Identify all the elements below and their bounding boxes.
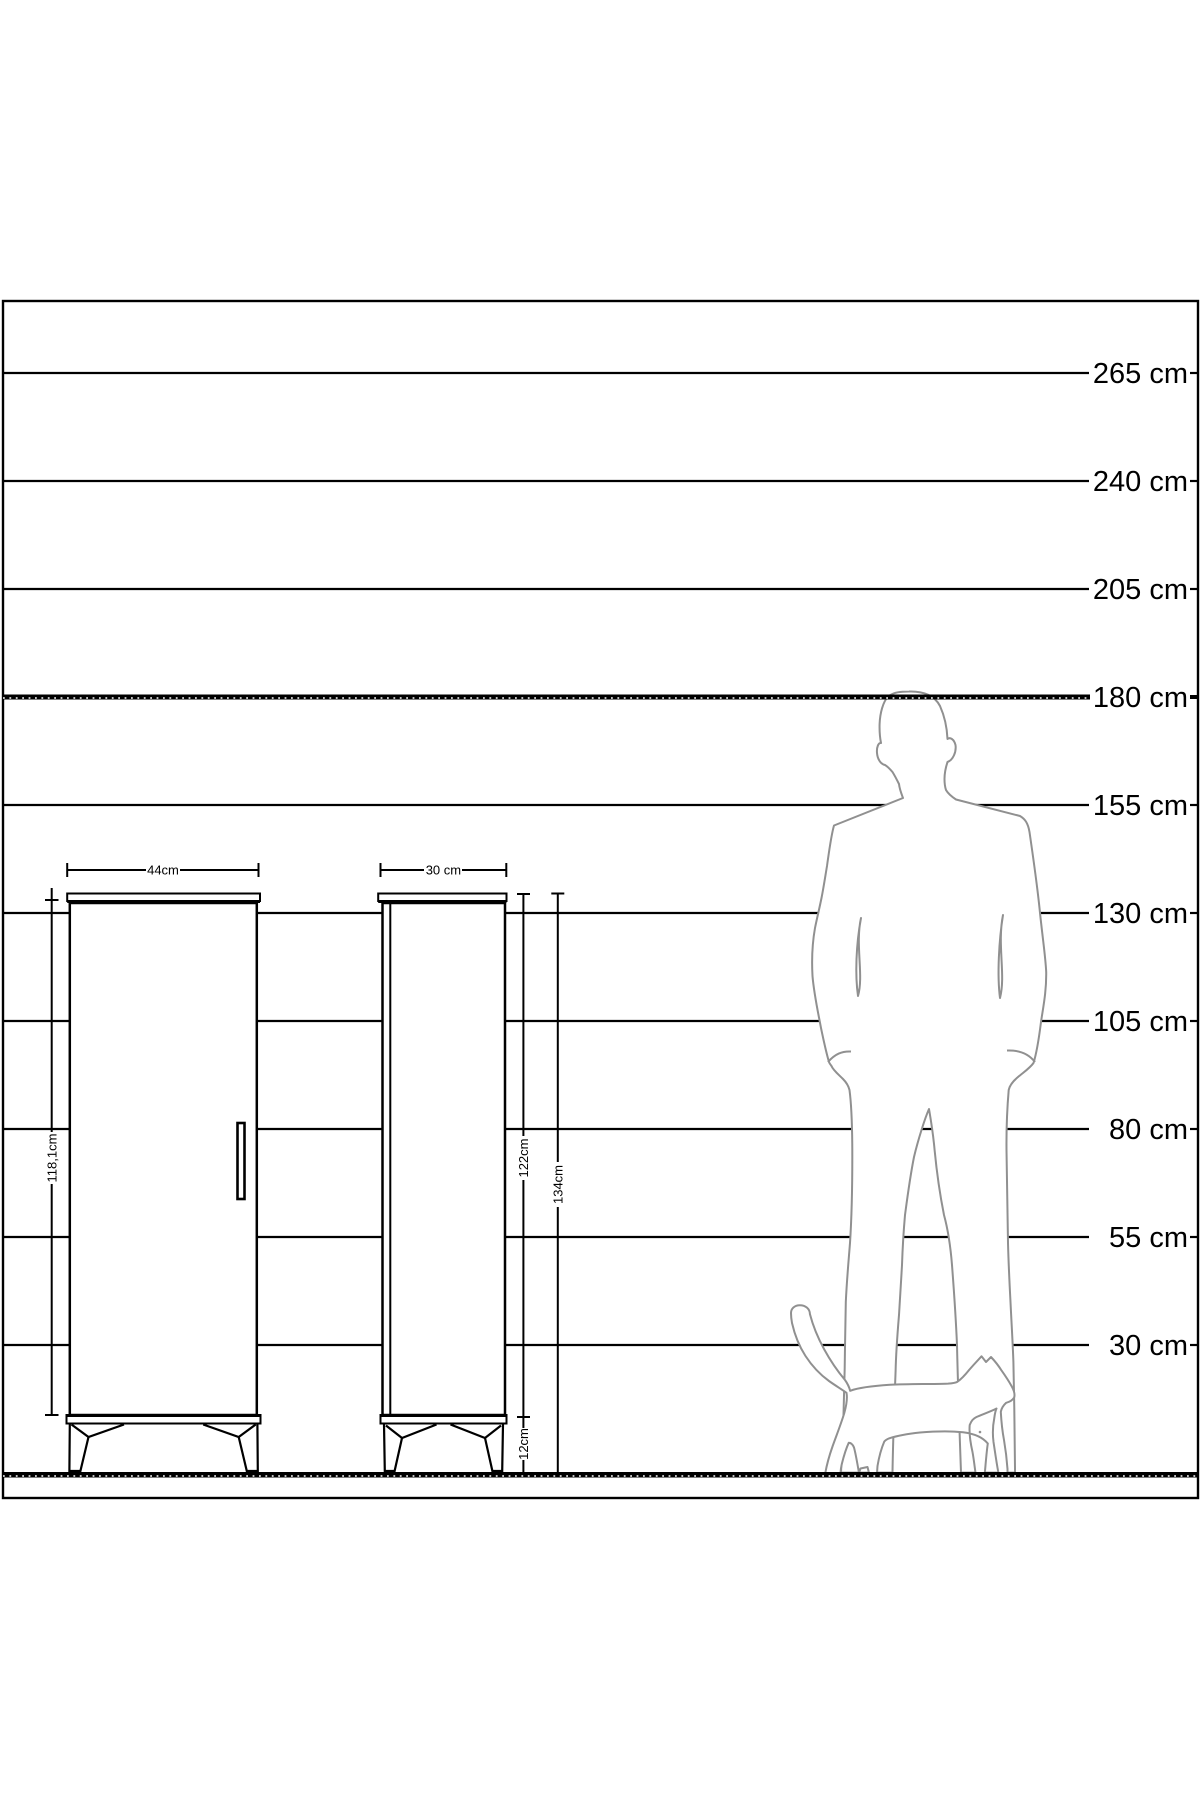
svg-text:265 cm: 265 cm: [1093, 358, 1188, 390]
svg-text:240 cm: 240 cm: [1093, 466, 1188, 498]
svg-text:155 cm: 155 cm: [1093, 790, 1188, 822]
svg-text:118,1cm: 118,1cm: [44, 1134, 59, 1183]
svg-text:44cm: 44cm: [147, 863, 179, 878]
svg-text:30 cm: 30 cm: [426, 863, 461, 878]
svg-text:134cm: 134cm: [550, 1165, 565, 1204]
svg-text:12cm: 12cm: [516, 1428, 531, 1460]
svg-text:80 cm: 80 cm: [1109, 1114, 1188, 1146]
svg-text:180 cm: 180 cm: [1093, 682, 1188, 714]
svg-text:105 cm: 105 cm: [1093, 1006, 1188, 1038]
svg-text:55 cm: 55 cm: [1109, 1222, 1188, 1254]
svg-text:130 cm: 130 cm: [1093, 898, 1188, 930]
svg-text:205 cm: 205 cm: [1093, 574, 1188, 606]
svg-text:122cm: 122cm: [516, 1138, 531, 1177]
svg-text:30 cm: 30 cm: [1109, 1330, 1188, 1362]
